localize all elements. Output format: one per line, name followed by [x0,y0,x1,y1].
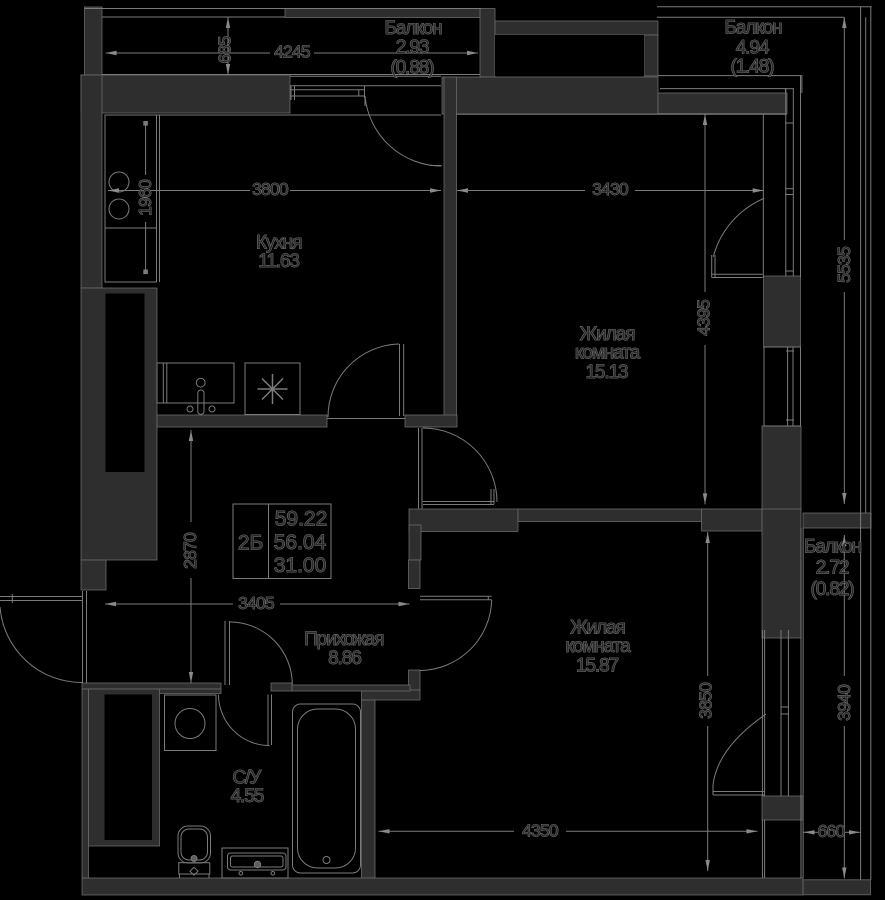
svg-text:15.13: 15.13 [585,362,628,383]
svg-text:5535: 5535 [834,247,854,283]
svg-text:685: 685 [215,37,235,64]
svg-text:(0.88): (0.88) [390,58,434,79]
svg-text:Прихожая: Прихожая [304,629,383,650]
svg-text:4.55: 4.55 [231,786,264,807]
svg-text:4350: 4350 [522,821,559,841]
svg-text:59.22: 59.22 [275,508,328,531]
svg-text:11.63: 11.63 [258,251,299,272]
svg-text:3800: 3800 [252,179,289,199]
svg-text:Балкон: Балкон [804,537,862,558]
svg-text:3430: 3430 [592,179,629,199]
svg-text:4.94: 4.94 [736,38,770,59]
svg-text:комната: комната [575,342,641,363]
svg-text:15.87: 15.87 [576,656,619,677]
svg-text:31.00: 31.00 [274,554,327,577]
svg-text:2Б: 2Б [238,532,263,555]
svg-text:660: 660 [818,821,846,841]
svg-text:2.72: 2.72 [816,558,849,579]
svg-text:(1.48): (1.48) [730,57,774,78]
svg-text:Балкон: Балкон [384,18,442,39]
svg-text:4395: 4395 [694,300,714,336]
svg-text:56.04: 56.04 [274,531,327,554]
svg-text:2870: 2870 [180,532,200,569]
svg-text:1960: 1960 [135,179,155,216]
svg-text:3405: 3405 [238,593,274,613]
svg-text:(0.82): (0.82) [810,579,854,600]
svg-text:2.93: 2.93 [396,37,429,58]
svg-text:4245: 4245 [274,42,310,62]
svg-text:3940: 3940 [834,684,854,721]
svg-text:8.86: 8.86 [328,648,361,669]
svg-text:3850: 3850 [696,682,716,719]
svg-text:Балкон: Балкон [724,18,782,39]
svg-text:комната: комната [565,636,631,657]
